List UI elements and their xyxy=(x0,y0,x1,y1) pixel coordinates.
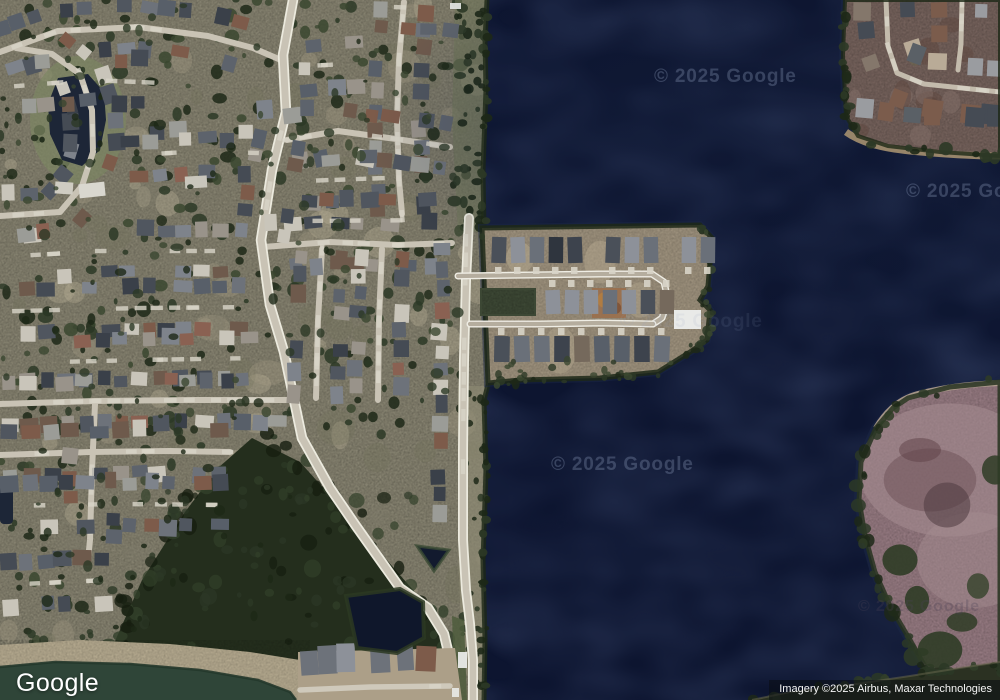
google-logo[interactable]: Google xyxy=(16,669,99,698)
satellite-imagery xyxy=(0,0,1000,700)
map-viewport[interactable]: © 2025 Google © 2025 Google © 2025 Googl… xyxy=(0,0,1000,700)
